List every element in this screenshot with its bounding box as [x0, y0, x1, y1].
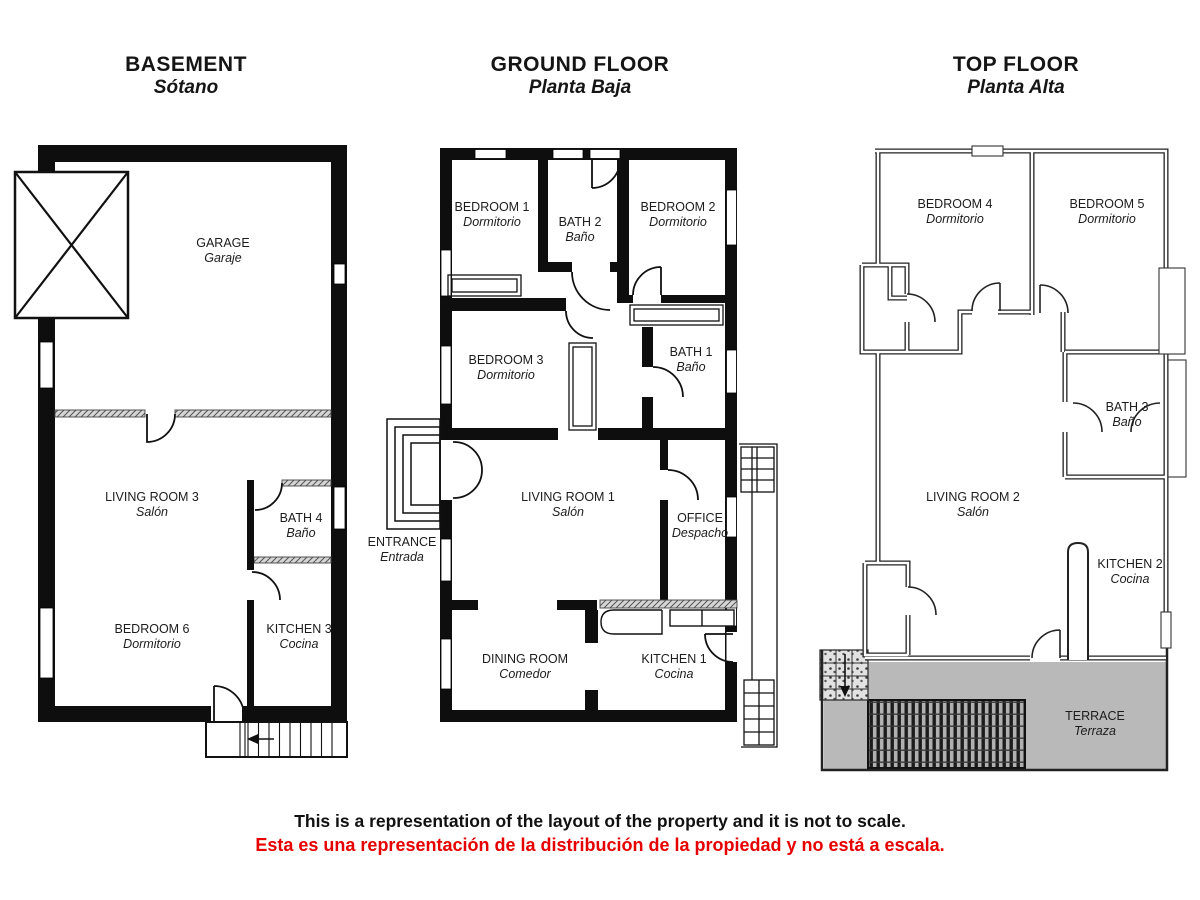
room-name-es: Salón: [957, 505, 989, 519]
room-name: KITCHEN 3: [266, 622, 331, 636]
top-floor-title: TOP FLOOR: [953, 53, 1079, 77]
room-name: ENTRANCE: [368, 535, 437, 549]
room-label-living-room-2: LIVING ROOM 2 Salón: [926, 490, 1020, 519]
room-name: BEDROOM 4: [917, 197, 992, 211]
basement-windows: [40, 264, 345, 678]
room-name-es: Cocina: [655, 667, 694, 681]
room-label-bedroom-3: BEDROOM 3 Dormitorio: [468, 353, 543, 382]
basement-plan: [15, 145, 347, 757]
room-label-bedroom-5: BEDROOM 5 Dormitorio: [1069, 197, 1144, 226]
room-name: BATH 4: [280, 511, 323, 525]
kitchen-peninsula: [1068, 543, 1088, 660]
room-name: BEDROOM 2: [640, 200, 715, 214]
room-name-es: Dormitorio: [477, 368, 535, 382]
room-name: BEDROOM 3: [468, 353, 543, 367]
room-name: BATH 3: [1106, 400, 1149, 414]
room-name: KITCHEN 2: [1097, 557, 1162, 571]
basement-subtitle: Sótano: [154, 77, 218, 99]
room-name: BATH 2: [559, 215, 602, 229]
room-label-terrace: TERRACE Terraza: [1065, 709, 1125, 738]
basement-doors: [147, 414, 282, 722]
room-name-es: Dormitorio: [649, 215, 707, 229]
room-label-bedroom-1: BEDROOM 1 Dormitorio: [454, 200, 529, 229]
room-label-kitchen-2: KITCHEN 2 Cocina: [1097, 557, 1162, 586]
room-name: BEDROOM 6: [114, 622, 189, 636]
disclaimer-spanish: Esta es una representación de la distrib…: [0, 835, 1200, 856]
room-name-es: Dormitorio: [1078, 212, 1136, 226]
room-name-es: Baño: [1112, 415, 1141, 429]
room-label-living-room-3: LIVING ROOM 3 Salón: [105, 490, 199, 519]
room-label-kitchen-1: KITCHEN 1 Cocina: [641, 652, 706, 681]
top-floor-plan: [820, 146, 1186, 770]
room-name-es: Comedor: [499, 667, 550, 681]
room-name: LIVING ROOM 3: [105, 490, 199, 504]
room-label-dining-room: DINING ROOM Comedor: [482, 652, 568, 681]
ground-kitchen-wall: [600, 600, 737, 608]
room-name-es: Baño: [286, 526, 315, 540]
room-name: GARAGE: [196, 236, 250, 250]
ground-kitchen-door-gap: [727, 632, 738, 662]
room-name-es: Salón: [552, 505, 584, 519]
basement-partition-walls: [55, 410, 331, 563]
ground-floor-title: GROUND FLOOR: [491, 53, 670, 77]
room-name: KITCHEN 1: [641, 652, 706, 666]
floorplan-page: BASEMENT Sótano GROUND FLOOR Planta Baja…: [0, 0, 1200, 900]
basement-interior-walls: [247, 480, 254, 706]
room-label-kitchen-3: KITCHEN 3 Cocina: [266, 622, 331, 651]
room-name: BEDROOM 1: [454, 200, 529, 214]
room-name-es: Terraza: [1074, 724, 1116, 738]
ground-exterior-stairs: [739, 444, 777, 747]
room-name: BATH 1: [670, 345, 713, 359]
room-name-es: Salón: [136, 505, 168, 519]
room-name: TERRACE: [1065, 709, 1125, 723]
room-name: LIVING ROOM 2: [926, 490, 1020, 504]
room-name-es: Cocina: [1111, 572, 1150, 586]
room-label-living-room-1: LIVING ROOM 1 Salón: [521, 490, 615, 519]
room-name: LIVING ROOM 1: [521, 490, 615, 504]
room-label-entrance: ENTRANCE Entrada: [368, 535, 437, 564]
ground-floor-subtitle: Planta Baja: [529, 77, 631, 99]
room-name: DINING ROOM: [482, 652, 568, 666]
room-label-bath-3: BATH 3 Baño: [1106, 400, 1149, 429]
room-name-es: Garaje: [204, 251, 242, 265]
room-label-bath-4: BATH 4 Baño: [280, 511, 323, 540]
ground-entrance-gap: [440, 440, 453, 500]
room-name-es: Despacho: [672, 526, 728, 540]
disclaimer-english: This is a representation of the layout o…: [0, 811, 1200, 832]
ground-entrance-steps: [387, 419, 440, 529]
floor-plan-drawing: [0, 0, 1200, 900]
room-name-es: Baño: [565, 230, 594, 244]
room-name-es: Entrada: [380, 550, 424, 564]
room-label-bath-2: BATH 2 Baño: [559, 215, 602, 244]
basement-title: BASEMENT: [125, 53, 247, 77]
room-name: OFFICE: [677, 511, 723, 525]
room-name-es: Cocina: [280, 637, 319, 651]
room-name: BEDROOM 5: [1069, 197, 1144, 211]
top-floor-doors: [907, 283, 1160, 658]
room-label-bedroom-4: BEDROOM 4 Dormitorio: [917, 197, 992, 226]
top-floor-subtitle: Planta Alta: [967, 77, 1065, 99]
room-label-garage: GARAGE Garaje: [196, 236, 250, 265]
room-name-es: Baño: [676, 360, 705, 374]
room-name-es: Dormitorio: [463, 215, 521, 229]
ground-kitchen-counters: [601, 610, 734, 634]
room-name-es: Dormitorio: [123, 637, 181, 651]
room-label-bedroom-2: BEDROOM 2 Dormitorio: [640, 200, 715, 229]
room-name-es: Dormitorio: [926, 212, 984, 226]
room-label-bedroom-6: BEDROOM 6 Dormitorio: [114, 622, 189, 651]
terrace-pergola: [868, 700, 1025, 768]
room-label-bath-1: BATH 1 Baño: [670, 345, 713, 374]
room-label-office: OFFICE Despacho: [672, 511, 728, 540]
basement-staircase: [206, 722, 347, 757]
